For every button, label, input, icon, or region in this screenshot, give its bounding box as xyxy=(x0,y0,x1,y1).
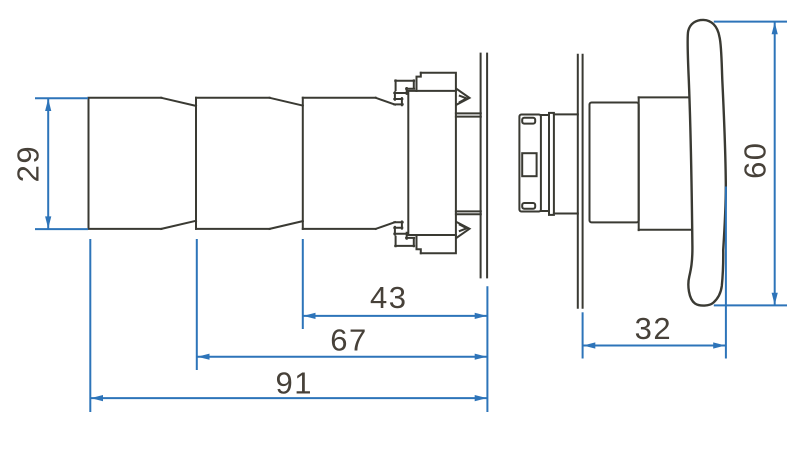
svg-text:60: 60 xyxy=(738,141,773,178)
svg-text:32: 32 xyxy=(635,311,672,346)
svg-text:29: 29 xyxy=(11,145,46,182)
svg-text:43: 43 xyxy=(370,280,407,315)
svg-text:67: 67 xyxy=(330,323,367,358)
svg-text:91: 91 xyxy=(276,366,313,401)
